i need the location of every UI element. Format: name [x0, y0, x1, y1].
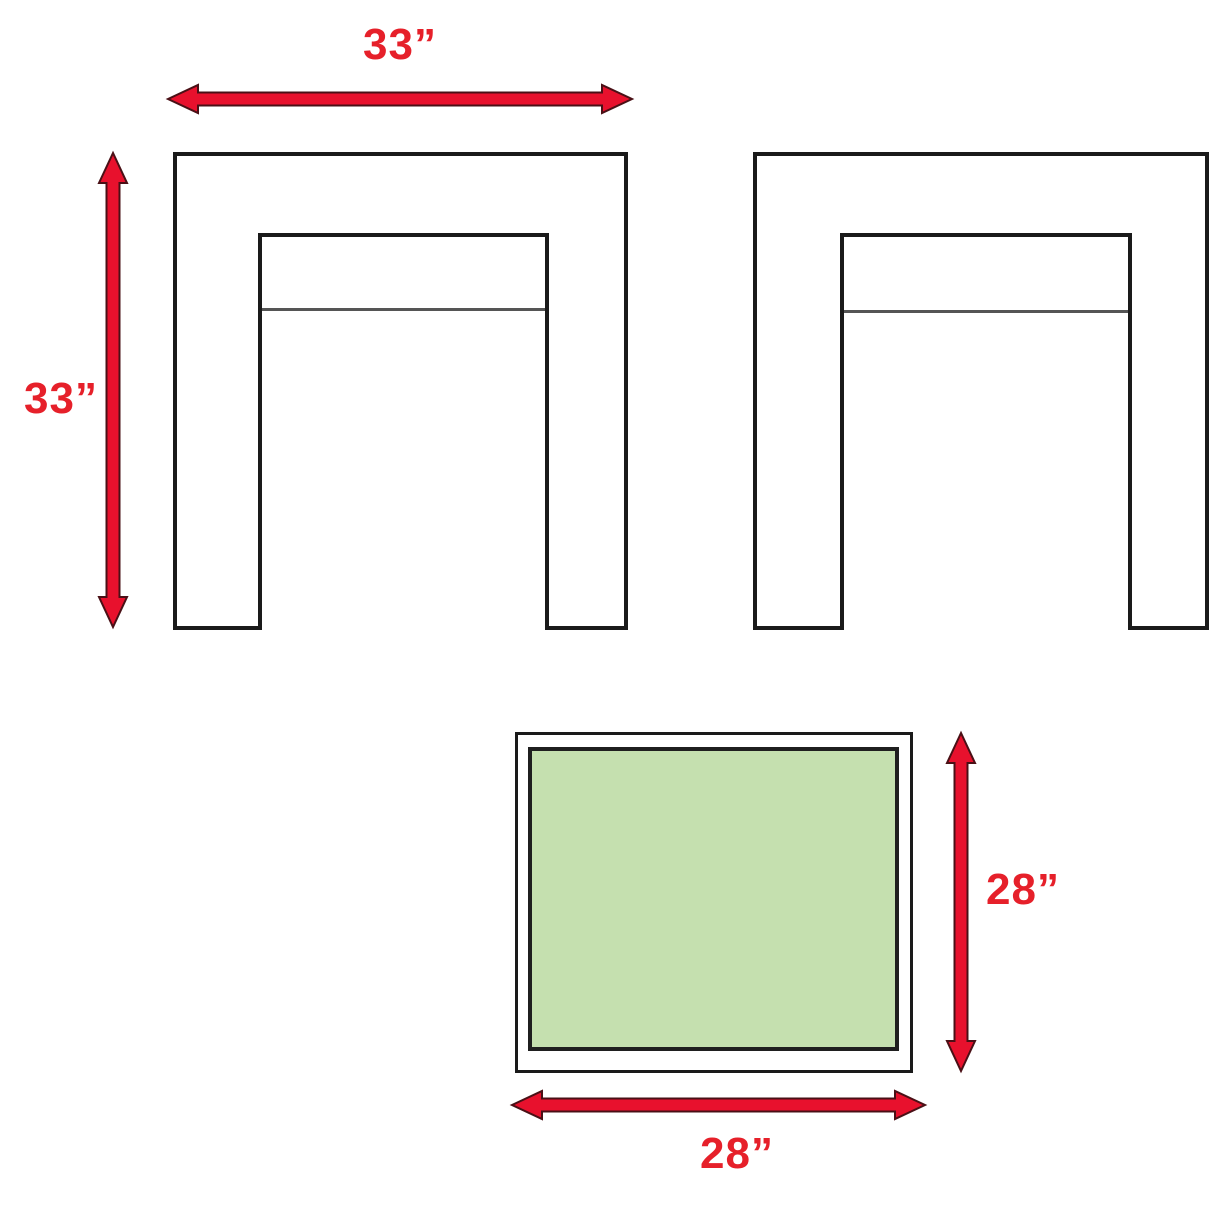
chair-right-back-cushion	[840, 233, 1132, 630]
chair-left-seat-divider	[262, 308, 545, 311]
ottoman-width-label: 28”	[700, 1132, 774, 1176]
width-dimension-arrow-icon	[158, 77, 642, 121]
chair-height-label: 33”	[24, 377, 98, 421]
ottoman-height-label: 28”	[986, 868, 1060, 912]
dimension-diagram: 33” 33” 28” 28”	[0, 0, 1214, 1214]
ottoman-height-dimension-arrow-icon	[939, 723, 983, 1081]
ottoman-cushion	[528, 747, 899, 1051]
ottoman-width-dimension-arrow-icon	[502, 1083, 935, 1127]
chair-right-seat-divider	[844, 310, 1128, 313]
height-dimension-arrow-icon	[91, 143, 135, 637]
chair-width-label: 33”	[363, 23, 437, 67]
chair-left-back-cushion	[258, 233, 549, 630]
